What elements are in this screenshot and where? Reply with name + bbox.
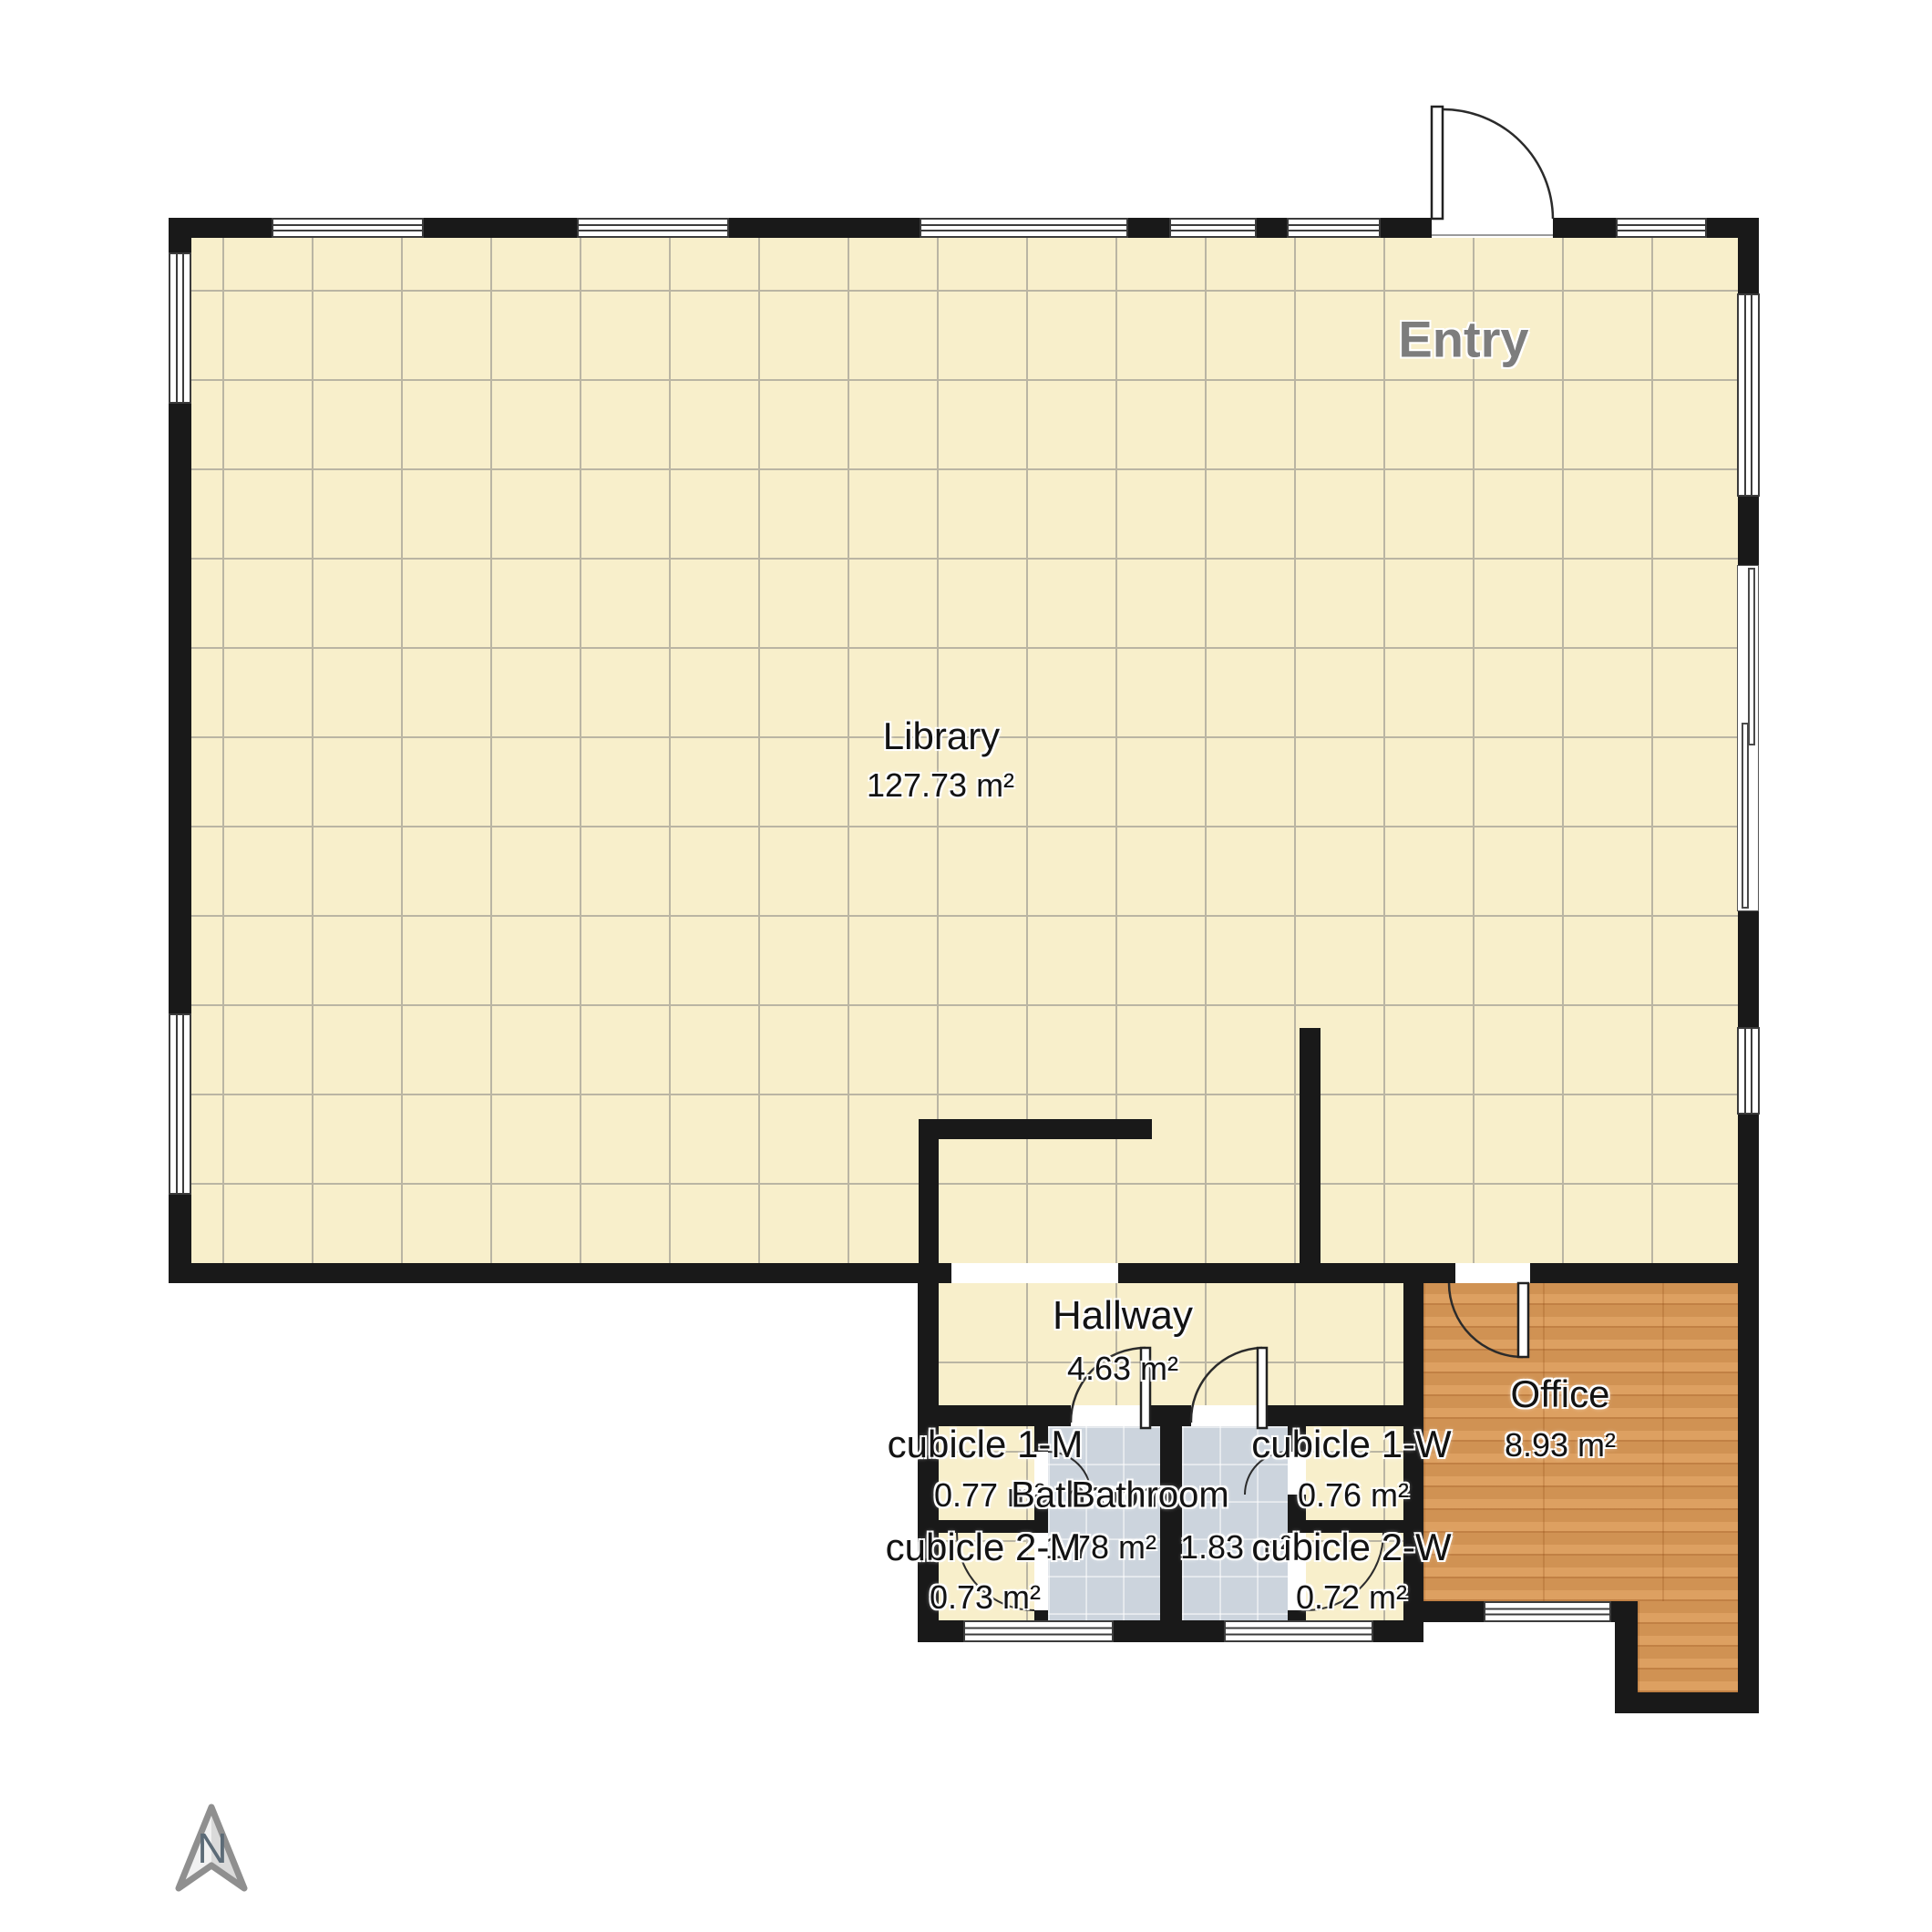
- window: [577, 218, 729, 238]
- wall-segment: [1738, 911, 1759, 1027]
- floorplan-canvas: N Entry Library 127.73 m² Hallway 4.63 m…: [0, 0, 1932, 1932]
- wall-segment: [1530, 1263, 1738, 1283]
- window: [1484, 1601, 1611, 1622]
- wall-segment: [1738, 1115, 1759, 1713]
- wall-segment: [1423, 1601, 1484, 1622]
- wall-segment: [1738, 218, 1759, 293]
- entry-door-leaf: [1432, 107, 1443, 219]
- wall-segment: [1114, 1620, 1224, 1642]
- wall-segment: [1738, 497, 1759, 565]
- office-floor-extension: [1638, 1601, 1738, 1692]
- window: [1737, 1027, 1760, 1115]
- room-label-cubicle-1m: cubicle 1-M: [888, 1423, 1084, 1466]
- wall-segment: [1373, 1620, 1423, 1642]
- window: [169, 1013, 191, 1195]
- wall-segment: [919, 1119, 1152, 1139]
- sliding-door-panel: [1742, 723, 1749, 909]
- wall-segment: [918, 1620, 963, 1642]
- sliding-door: [1737, 565, 1759, 911]
- wall-segment: [1146, 1405, 1191, 1426]
- window: [963, 1620, 1114, 1642]
- room-area-office: 8.93 m²: [1505, 1426, 1616, 1464]
- wall-segment: [729, 218, 920, 238]
- room-label-cubicle-2m: cubicle 2-M: [886, 1526, 1082, 1569]
- wall-segment: [1381, 218, 1432, 238]
- wall-segment: [1128, 218, 1169, 238]
- wall-segment: [1300, 1028, 1321, 1263]
- wall-segment: [919, 1139, 939, 1263]
- wall-segment: [1118, 1263, 1455, 1283]
- room-area-hallway: 4.63 m²: [1067, 1350, 1178, 1388]
- window: [920, 218, 1128, 238]
- entry-door-threshold: [1432, 234, 1553, 236]
- window: [1169, 218, 1257, 238]
- window: [1616, 218, 1707, 238]
- wall-segment: [1553, 218, 1616, 238]
- sliding-door-panel: [1748, 568, 1755, 745]
- wall-segment: [1257, 218, 1287, 238]
- wall-segment: [169, 404, 191, 1013]
- window: [272, 218, 424, 238]
- wall-segment: [1615, 1692, 1759, 1713]
- north-arrow: N: [179, 1807, 244, 1888]
- room-label-entry: Entry: [1398, 310, 1528, 369]
- wall-segment: [1611, 1601, 1638, 1622]
- wall-segment: [1160, 1426, 1182, 1620]
- north-arrow-label: N: [197, 1824, 227, 1872]
- wall-segment: [169, 1263, 951, 1283]
- room-area-library: 127.73 m²: [867, 766, 1014, 805]
- room-label-library: Library: [883, 714, 1000, 758]
- wall-segment: [169, 218, 191, 252]
- window: [1287, 218, 1381, 238]
- room-area-cubicle-1w: 0.76 m²: [1298, 1476, 1409, 1515]
- room-label-hallway: Hallway: [1053, 1293, 1193, 1339]
- room-label-bathroom-w: Bathroom: [1071, 1475, 1228, 1516]
- window: [1737, 293, 1760, 497]
- wall-segment: [424, 218, 577, 238]
- room-area-cubicle-2m: 0.73 m²: [930, 1578, 1041, 1617]
- wall-segment: [1615, 1622, 1638, 1692]
- room-area-cubicle-2w: 0.72 m²: [1296, 1578, 1407, 1617]
- room-label-cubicle-1w: cubicle 1-W: [1251, 1423, 1451, 1466]
- entry-door-arc: [1443, 109, 1553, 219]
- room-label-cubicle-2w: cubicle 2-W: [1251, 1526, 1451, 1569]
- window: [169, 252, 191, 404]
- room-label-office: Office: [1511, 1372, 1610, 1416]
- window: [1224, 1620, 1373, 1642]
